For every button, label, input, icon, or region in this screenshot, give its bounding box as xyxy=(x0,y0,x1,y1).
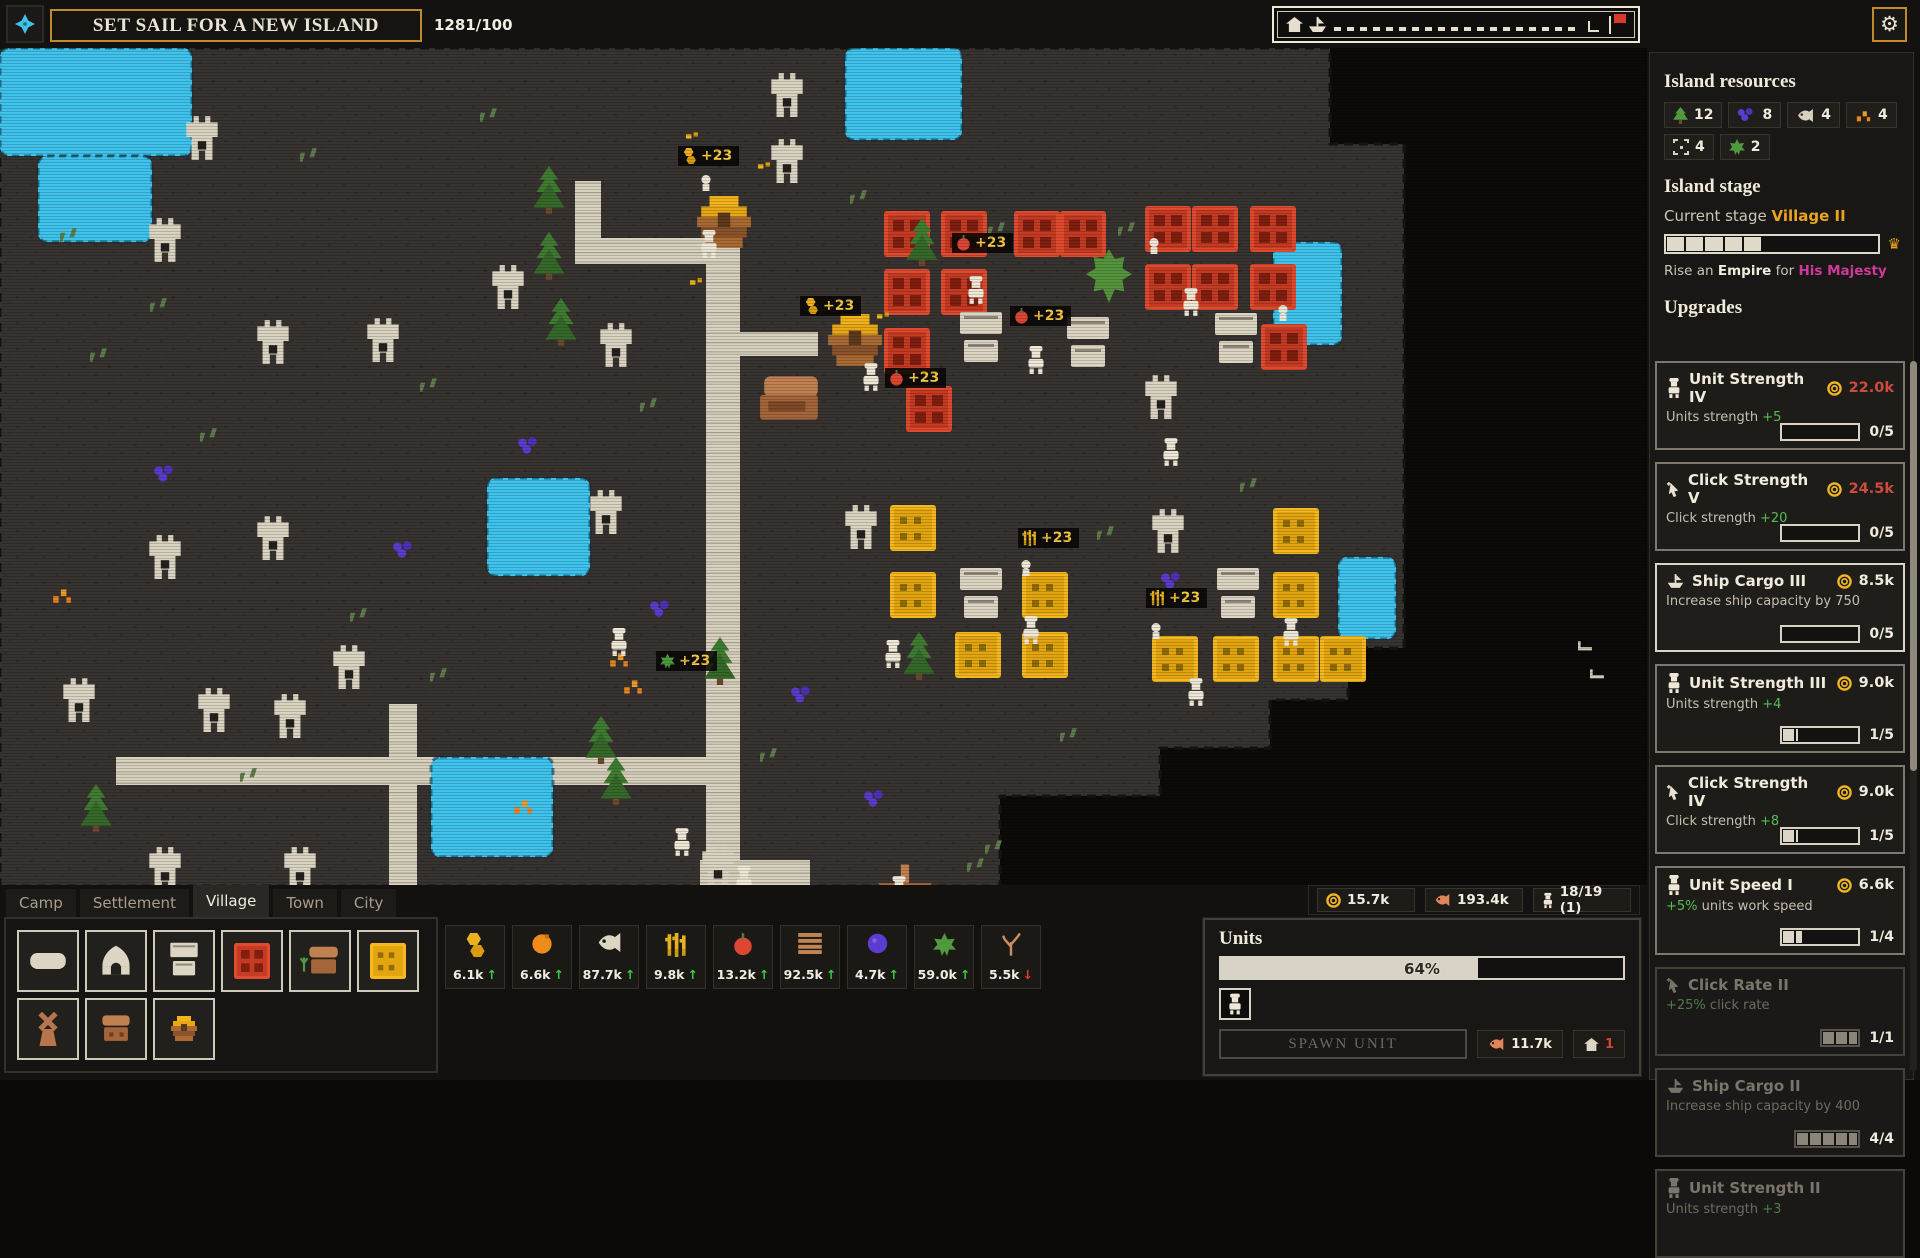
upgrade-header: Unit Strength II xyxy=(1666,1178,1894,1198)
trend-up-icon: ↑ xyxy=(687,967,697,982)
orange-icon xyxy=(531,933,553,955)
unit-icon xyxy=(1542,892,1554,909)
upgrade-name: Unit Strength IV xyxy=(1689,370,1820,406)
branch-icon xyxy=(1001,933,1021,956)
tab-camp[interactable]: Camp xyxy=(6,889,76,917)
upgrade-header: Click Rate II xyxy=(1666,976,1894,994)
unit-icon xyxy=(1666,673,1682,693)
honeycomb-icon xyxy=(464,933,486,957)
upgrade-card-click-strength-v[interactable]: Click Strength V24.5kClick strength +200… xyxy=(1655,462,1905,551)
gear-icon: ⚙ xyxy=(1880,13,1899,36)
upgrade-progress-label: 0/5 xyxy=(1868,626,1894,642)
tab-city[interactable]: City xyxy=(341,889,396,917)
island-resource-leaf: 2 xyxy=(1720,134,1770,160)
map-water xyxy=(38,156,152,242)
upgrade-description: Increase ship capacity by 400 xyxy=(1666,1099,1894,1114)
map-wheat-farm[interactable] xyxy=(890,505,936,551)
island-resource-count: 4 xyxy=(1695,139,1705,155)
upgrade-cost: 6.6k xyxy=(1859,877,1894,893)
map-red-farm[interactable] xyxy=(906,386,952,432)
upgrade-name: Click Strength V xyxy=(1688,471,1820,507)
stage-segment xyxy=(1763,237,1780,251)
resource-counter-branch[interactable]: 5.5k↓ xyxy=(981,925,1041,989)
trend-up-icon: ↑ xyxy=(960,967,970,982)
rise-empire-line: Rise an Empire for His Majesty xyxy=(1664,263,1901,279)
upgrade-progress-bar xyxy=(1780,625,1860,643)
units-progress-pct: 64% xyxy=(1221,960,1623,978)
trend-up-icon: ↑ xyxy=(625,967,635,982)
upgrade-card-unit-speed-i[interactable]: Unit Speed I6.6k+5% units work speed1/4 xyxy=(1655,866,1905,955)
pine-icon xyxy=(1673,107,1688,124)
map-red-farm[interactable] xyxy=(941,211,987,257)
map-water xyxy=(487,478,590,576)
trend-up-icon: ↑ xyxy=(553,967,563,982)
road-icon xyxy=(30,953,66,969)
map-road[interactable] xyxy=(389,704,417,885)
current-stage-line: Current stage Village II xyxy=(1664,207,1901,225)
house-icon xyxy=(1286,17,1303,32)
island-resource-count: 4 xyxy=(1878,107,1888,123)
app-logo xyxy=(6,5,44,43)
island-resource-ruins: 4 xyxy=(1664,134,1714,160)
resource-value: 5.5k↓ xyxy=(989,967,1033,982)
trend-up-icon: ↑ xyxy=(759,967,769,982)
unit-icon xyxy=(1227,993,1243,1015)
trend-up-icon: ↑ xyxy=(888,967,898,982)
building-hive-button[interactable] xyxy=(153,998,215,1060)
coin-icon xyxy=(1837,878,1852,893)
resource-value: 87.7k↑ xyxy=(583,967,636,982)
stage-segment xyxy=(1725,237,1742,251)
apple-icon xyxy=(733,933,753,956)
status-unit: 18/19 (1) xyxy=(1533,888,1631,912)
building-chest-button[interactable] xyxy=(85,998,147,1060)
resource-value: 92.5k↑ xyxy=(784,967,837,982)
map-hut[interactable] xyxy=(760,376,818,419)
upgrade-progress-label: 1/1 xyxy=(1868,1030,1894,1046)
upgrade-progress-bar xyxy=(1780,423,1860,441)
map-water xyxy=(1338,557,1396,639)
resource-value: 9.8k↑ xyxy=(654,967,698,982)
resource-counter-berry[interactable]: 4.7k↑ xyxy=(847,925,907,989)
upgrade-cost: 9.0k xyxy=(1859,675,1894,691)
map-red-farm[interactable] xyxy=(1192,264,1238,310)
upgrade-cost: 9.0k xyxy=(1859,784,1894,800)
tab-settlement[interactable]: Settlement xyxy=(80,889,189,917)
upgrade-name: Ship Cargo III xyxy=(1692,572,1830,590)
map-red-farm[interactable] xyxy=(1250,264,1296,310)
upgrade-progress-row: 1/1 xyxy=(1820,1029,1894,1047)
upgrade-progress-row: 0/5 xyxy=(1780,423,1894,441)
map-road[interactable] xyxy=(706,238,740,885)
map-wheat-farm[interactable] xyxy=(1213,636,1259,682)
upgrade-name: Click Rate II xyxy=(1688,976,1894,994)
map-red-farm[interactable] xyxy=(1014,211,1060,257)
upgrade-progress-bar xyxy=(1780,827,1860,845)
fish-icon xyxy=(1796,109,1815,122)
island-resource-count: 2 xyxy=(1751,139,1761,155)
stage-segment xyxy=(1782,237,1799,251)
cursor-icon xyxy=(1666,977,1681,994)
upgrades-title: Upgrades xyxy=(1664,297,1901,319)
map-wheat-farm[interactable] xyxy=(1320,636,1366,682)
map-water xyxy=(845,48,962,140)
coin-icon xyxy=(1837,785,1852,800)
units-progress-bar: 64% xyxy=(1219,956,1625,980)
stage-segment xyxy=(1859,237,1876,251)
compass-icon xyxy=(15,14,35,34)
right-sidebar: Island resources 1284442 Island stage Cu… xyxy=(1647,48,1920,1080)
map-wheat-farm[interactable] xyxy=(1152,636,1198,682)
map-red-farm[interactable] xyxy=(1060,211,1106,257)
leaf-icon xyxy=(933,933,956,956)
resource-strip: 6.1k↑6.6k↑87.7k↑9.8k↑13.2k↑92.5k↑4.7k↑59… xyxy=(445,925,1041,989)
rise-mid: for xyxy=(1771,263,1798,279)
ruins-icon xyxy=(1673,139,1689,155)
trend-up-icon: ↑ xyxy=(486,967,496,982)
cursor-icon xyxy=(1666,481,1681,498)
red-flag-icon xyxy=(1614,14,1626,23)
ship-icon xyxy=(1307,16,1328,33)
upgrade-progress-bar xyxy=(1780,524,1860,542)
upgrade-progress-label: 1/4 xyxy=(1868,929,1894,945)
units-panel: Units 64% SPAWN UNIT 11.7k 1 xyxy=(1203,918,1641,1076)
resource-value: 4.7k↑ xyxy=(855,967,899,982)
tab-town[interactable]: Town xyxy=(273,889,337,917)
map-wheat-farm[interactable] xyxy=(1022,572,1068,618)
upgrade-header: Unit Speed I6.6k xyxy=(1666,875,1894,895)
spawn-cost-fish: 11.7k xyxy=(1477,1030,1563,1058)
unit-slot[interactable] xyxy=(1219,988,1251,1020)
upgrade-name: Unit Speed I xyxy=(1689,876,1830,894)
upgrade-card-unit-strength-iii[interactable]: Unit Strength III9.0kUnits strength +41/… xyxy=(1655,664,1905,753)
status-panel: 15.7k193.4k18/19 (1) xyxy=(1308,885,1640,915)
upgrade-progress-row: 1/5 xyxy=(1780,726,1894,744)
coin-icon xyxy=(1837,676,1852,691)
upgrade-description: Increase ship capacity by 750 xyxy=(1666,594,1894,609)
chest-icon xyxy=(99,1013,133,1045)
map-red-farm[interactable] xyxy=(884,269,930,315)
island-resource-embers: 4 xyxy=(1846,102,1897,128)
set-sail-button[interactable]: SET SAIL FOR A NEW ISLAND xyxy=(50,9,422,42)
upgrade-progress-fill xyxy=(1797,1133,1857,1145)
stage-segment xyxy=(1840,237,1857,251)
upgrade-description: +25% click rate xyxy=(1666,998,1894,1013)
upgrade-card-unit-strength-iv[interactable]: Unit Strength IV22.0kUnits strength +50/… xyxy=(1655,361,1905,450)
cursor-icon xyxy=(1666,784,1681,801)
top-bar: SET SAIL FOR A NEW ISLAND 1281/100 ⚙ xyxy=(0,0,1920,48)
upgrade-card-ship-cargo-iii[interactable]: Ship Cargo III8.5kIncrease ship capacity… xyxy=(1655,563,1905,652)
stage-segment xyxy=(1705,237,1722,251)
resource-value: 13.2k↑ xyxy=(717,967,770,982)
upgrade-progress-bar xyxy=(1780,928,1860,946)
upgrade-progress-bar xyxy=(1820,1029,1860,1047)
upgrade-description: Units strength +4 xyxy=(1666,697,1894,712)
resource-counter-wheat[interactable]: 9.8k↑ xyxy=(646,925,706,989)
cargo-counter: 1281/100 xyxy=(434,16,513,34)
game-root: SET SAIL FOR A NEW ISLAND 1281/100 ⚙ +23… xyxy=(0,0,1920,1080)
upgrade-header: Ship Cargo III8.5k xyxy=(1666,572,1894,590)
upgrade-progress-label: 4/4 xyxy=(1868,1131,1894,1147)
map-wheat-farm[interactable] xyxy=(1022,632,1068,678)
fish-icon xyxy=(1434,894,1451,906)
map-canvas[interactable] xyxy=(0,48,1647,885)
fish-icon xyxy=(1488,1038,1505,1050)
upgrade-cost: 8.5k xyxy=(1859,573,1894,589)
upgrade-progress-fill xyxy=(1783,931,1802,943)
upgrade-progress-fill xyxy=(1783,830,1798,842)
island-stage-title: Island stage xyxy=(1664,176,1901,198)
status-value: 193.4k xyxy=(1457,892,1509,908)
voyage-end-tick xyxy=(1588,21,1599,32)
storage-icon xyxy=(169,942,199,980)
resource-counter-honeycomb[interactable]: 6.1k↑ xyxy=(445,925,505,989)
current-stage-label: Current stage xyxy=(1664,207,1767,225)
upgrades-list: Unit Strength IV22.0kUnits strength +50/… xyxy=(1655,361,1905,1258)
trend-down-icon: ↓ xyxy=(1022,967,1032,982)
spawn-cost-house-value: 1 xyxy=(1605,1037,1614,1052)
stage-progress-bar xyxy=(1664,234,1880,254)
voyage-dash-line xyxy=(1334,27,1578,31)
island-resource-count: 4 xyxy=(1821,107,1831,123)
map-red-farm[interactable] xyxy=(1192,206,1238,252)
berries-icon xyxy=(1737,108,1756,122)
map-wheat-farm[interactable] xyxy=(1273,572,1319,618)
upgrade-card-ship-cargo-ii[interactable]: Ship Cargo IIIncrease ship capacity by 4… xyxy=(1655,1068,1905,1157)
upgrade-progress-bar xyxy=(1794,1130,1860,1148)
map-road[interactable] xyxy=(575,181,601,241)
rise-majesty: His Majesty xyxy=(1798,263,1886,279)
crown-icon: ♛ xyxy=(1888,235,1901,253)
upgrade-header: Click Strength IV9.0k xyxy=(1666,774,1894,810)
coin-icon xyxy=(1326,893,1341,908)
map-wheat-farm[interactable] xyxy=(955,632,1001,678)
resource-counter-fish[interactable]: 87.7k↑ xyxy=(579,925,639,989)
hut-icon xyxy=(99,944,133,978)
upgrade-header: Unit Strength III9.0k xyxy=(1666,673,1894,693)
upgrade-card-unit-strength-ii[interactable]: Unit Strength IIUnits strength +3 xyxy=(1655,1169,1905,1258)
upgrade-card-click-rate-ii[interactable]: Click Rate II+25% click rate1/1 xyxy=(1655,967,1905,1056)
planks-icon xyxy=(798,933,822,954)
map-road[interactable] xyxy=(740,332,818,356)
building-tanner-button[interactable] xyxy=(289,930,351,992)
settings-button[interactable]: ⚙ xyxy=(1872,7,1907,42)
map-red-farm[interactable] xyxy=(884,328,930,374)
unit-icon xyxy=(1666,378,1682,398)
map-wheat-farm[interactable] xyxy=(890,572,936,618)
coin-icon xyxy=(1827,482,1842,497)
spawn-row: SPAWN UNIT 11.7k 1 xyxy=(1219,1029,1625,1059)
upgrade-name: Unit Strength II xyxy=(1689,1179,1894,1197)
resource-value: 6.1k↑ xyxy=(453,967,497,982)
upgrade-header: Click Strength V24.5k xyxy=(1666,471,1894,507)
building-road-button[interactable] xyxy=(17,930,79,992)
coin-icon xyxy=(1837,574,1852,589)
upgrade-card-click-strength-iv[interactable]: Click Strength IV9.0kClick strength +81/… xyxy=(1655,765,1905,854)
upgrade-progress-label: 0/5 xyxy=(1868,525,1894,541)
current-stage-value: Village II xyxy=(1772,207,1846,225)
island-resource-berries: 8 xyxy=(1728,102,1781,128)
island-resource-chips: 1284442 xyxy=(1664,102,1909,160)
bottom-bar: CampSettlementVillageTownCity 6.1k↑6.6k↑… xyxy=(0,885,1647,1080)
upgrade-progress-fill xyxy=(1783,729,1798,741)
resource-counter-planks[interactable]: 92.5k↑ xyxy=(780,925,840,989)
tanner-icon xyxy=(300,945,340,977)
map-water xyxy=(0,48,192,156)
stage-segment xyxy=(1686,237,1703,251)
berry-icon xyxy=(867,933,888,954)
upgrade-progress-bar xyxy=(1780,726,1860,744)
upgrade-progress-row: 1/5 xyxy=(1780,827,1894,845)
map-red-farm[interactable] xyxy=(1261,324,1307,370)
upgrade-progress-row: 0/5 xyxy=(1780,625,1894,643)
ship-icon xyxy=(1666,573,1685,589)
upgrade-progress-label: 1/5 xyxy=(1868,727,1894,743)
resource-counter-apple[interactable]: 13.2k↑ xyxy=(713,925,773,989)
resource-counter-orange[interactable]: 6.6k↑ xyxy=(512,925,572,989)
scrollbar-thumb[interactable] xyxy=(1910,361,1917,771)
stage-segment xyxy=(1667,237,1684,251)
ship-icon xyxy=(1666,1078,1685,1094)
building-red-farm-button[interactable] xyxy=(221,930,283,992)
wheat-icon xyxy=(665,933,687,957)
wheat-farm-icon xyxy=(370,943,406,979)
units-title: Units xyxy=(1219,928,1625,950)
embers-icon xyxy=(1855,108,1872,123)
rise-empire: Empire xyxy=(1718,263,1771,279)
upgrades-scrollbar[interactable] xyxy=(1910,361,1917,1071)
rise-pre: Rise an xyxy=(1664,263,1718,279)
upgrade-cost: 22.0k xyxy=(1849,380,1894,396)
upgrade-cost: 24.5k xyxy=(1849,481,1894,497)
windmill-icon xyxy=(31,1010,65,1048)
building-hut-button[interactable] xyxy=(85,930,147,992)
red-farm-icon xyxy=(234,943,270,979)
unit-icon xyxy=(1666,1178,1682,1198)
island-resources-title: Island resources xyxy=(1664,71,1901,93)
building-tabs: CampSettlementVillageTownCity xyxy=(6,887,396,917)
building-wheat-farm-button[interactable] xyxy=(357,930,419,992)
building-storage-button[interactable] xyxy=(153,930,215,992)
island-resource-pine: 12 xyxy=(1664,102,1722,128)
fish-icon xyxy=(596,933,623,952)
map-wheat-farm[interactable] xyxy=(1273,508,1319,554)
upgrade-description: +5% units work speed xyxy=(1666,899,1894,914)
upgrade-progress-label: 1/5 xyxy=(1868,828,1894,844)
spawn-cost-house: 1 xyxy=(1573,1030,1625,1058)
voyage-track xyxy=(1277,11,1635,38)
upgrade-name: Unit Strength III xyxy=(1689,674,1830,692)
island-resource-count: 8 xyxy=(1762,107,1772,123)
status-value: 15.7k xyxy=(1347,892,1389,908)
status-coin: 15.7k xyxy=(1317,888,1415,912)
island-resource-fish: 4 xyxy=(1787,102,1840,128)
upgrade-header: Unit Strength IV22.0k xyxy=(1666,370,1894,406)
leaf-icon xyxy=(1729,139,1745,155)
house-icon xyxy=(1584,1038,1599,1051)
stage-progress: ♛ xyxy=(1664,234,1901,254)
buildings-panel xyxy=(4,917,438,1073)
hive-icon xyxy=(170,1015,198,1043)
map-water xyxy=(431,757,553,857)
upgrade-progress-row: 0/5 xyxy=(1780,524,1894,542)
stage-segment xyxy=(1821,237,1838,251)
building-windmill-button[interactable] xyxy=(17,998,79,1060)
tab-village[interactable]: Village xyxy=(193,885,269,917)
upgrade-progress-label: 0/5 xyxy=(1868,424,1894,440)
upgrade-name: Click Strength IV xyxy=(1688,774,1830,810)
trend-up-icon: ↑ xyxy=(826,967,836,982)
coin-icon xyxy=(1827,381,1842,396)
resource-value: 59.0k↑ xyxy=(918,967,971,982)
spawn-unit-button[interactable]: SPAWN UNIT xyxy=(1219,1029,1467,1059)
upgrade-description: Units strength +3 xyxy=(1666,1202,1894,1217)
upgrade-progress-row: 1/4 xyxy=(1780,928,1894,946)
stage-segment xyxy=(1744,237,1761,251)
flag-pole xyxy=(1609,16,1611,34)
status-fish: 193.4k xyxy=(1425,888,1523,912)
upgrade-progress-row: 4/4 xyxy=(1794,1130,1894,1148)
unit-icon xyxy=(1666,875,1682,895)
status-value: 18/19 (1) xyxy=(1560,884,1622,916)
voyage-progress xyxy=(1272,6,1640,43)
map-road[interactable] xyxy=(575,238,707,264)
spawn-cost-fish-value: 11.7k xyxy=(1511,1037,1552,1052)
stage-segment xyxy=(1802,237,1819,251)
upgrade-progress-fill xyxy=(1823,1032,1857,1044)
map-red-farm[interactable] xyxy=(1250,206,1296,252)
resource-counter-leaf[interactable]: 59.0k↑ xyxy=(914,925,974,989)
resource-value: 6.6k↑ xyxy=(520,967,564,982)
island-resource-count: 12 xyxy=(1694,107,1713,123)
